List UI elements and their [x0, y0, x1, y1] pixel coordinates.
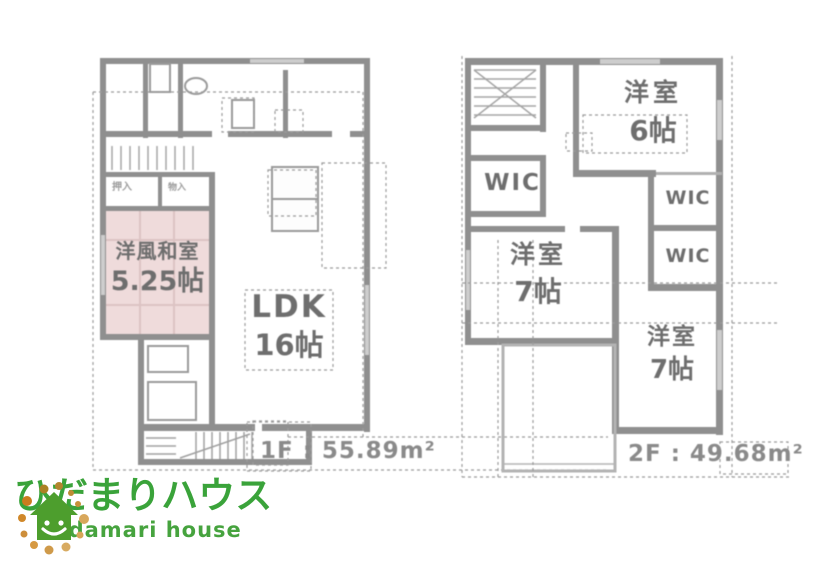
room-size-bedroom-7-right: 7帖	[622, 357, 722, 383]
room-size-bedroom-6: 6帖	[598, 117, 708, 145]
room-label-bedroom-7-left: 洋室	[488, 242, 588, 267]
room-label-wic-left: WIC	[470, 172, 555, 195]
room-size-western-japanese-room: 5.25帖	[100, 268, 215, 295]
room-label-bedroom-7-right: 洋室	[622, 326, 722, 349]
room-size-bedroom-7-left: 7帖	[488, 278, 588, 306]
room-size-ldk: 16帖	[243, 331, 335, 360]
company-logo: ひだまりハウス hidamari house	[14, 477, 272, 541]
closet-label-mono-ire: 物入	[168, 184, 186, 193]
floor-area-label-2f: 2F : 49.68m²	[628, 443, 804, 466]
closet-label-oshiire: 押入	[112, 183, 132, 193]
room-label-wic-right-lower: WIC	[652, 247, 724, 266]
room-label-wic-right-upper: WIC	[652, 189, 724, 208]
logo-house-sun-icon	[14, 477, 98, 561]
flyer-canvas: 洋風和室 5.25帖 LDK 16帖 押入 物入 1F : 55.89m² 洋室…	[0, 0, 824, 561]
room-label-ldk: LDK	[243, 292, 335, 323]
room-label-western-japanese-room: 洋風和室	[100, 241, 215, 261]
floor-area-label-1f: 1F : 55.89m²	[260, 440, 436, 463]
room-label-bedroom-6: 洋室	[598, 80, 708, 105]
